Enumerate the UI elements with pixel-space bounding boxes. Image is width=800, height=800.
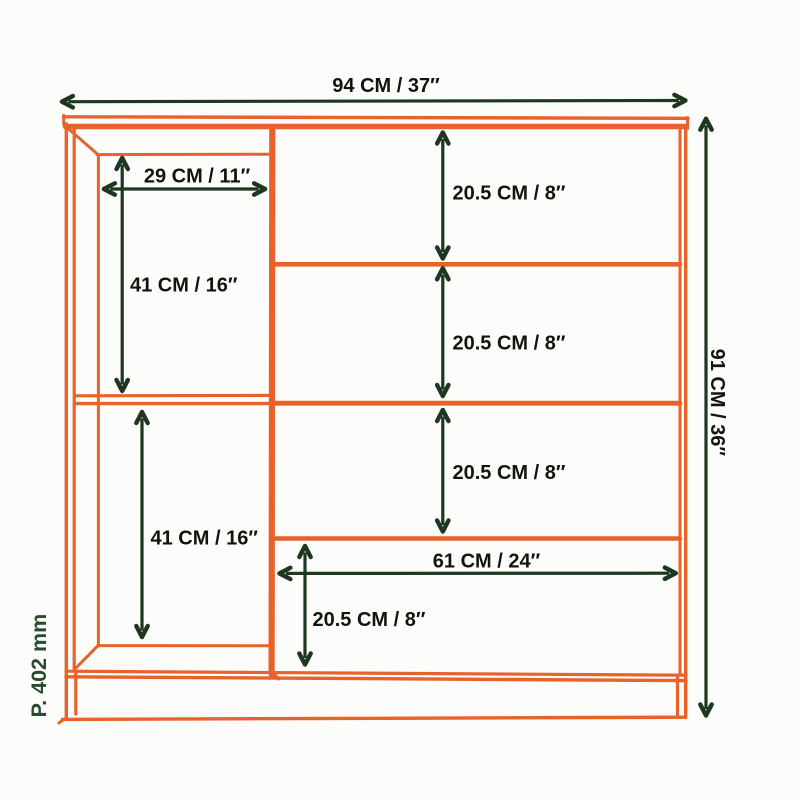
svg-text:20.5 CM / 8″: 20.5 CM / 8″ [453,183,566,205]
svg-text:20.5 CM / 8″: 20.5 CM / 8″ [453,333,566,355]
svg-text:20.5 CM / 8″: 20.5 CM / 8″ [453,462,566,484]
svg-text:91 CM / 36″: 91 CM / 36″ [706,349,728,457]
svg-text:P. 402 mm: P. 402 mm [27,614,51,718]
svg-text:61 CM / 24″: 61 CM / 24″ [433,551,541,573]
svg-text:29 CM / 11″: 29 CM / 11″ [144,166,251,188]
svg-text:94 CM / 37″: 94 CM / 37″ [332,75,440,97]
svg-text:20.5 CM / 8″: 20.5 CM / 8″ [313,609,426,631]
svg-text:41 CM / 16″: 41 CM / 16″ [151,527,259,549]
svg-text:41 CM / 16″: 41 CM / 16″ [130,275,238,297]
